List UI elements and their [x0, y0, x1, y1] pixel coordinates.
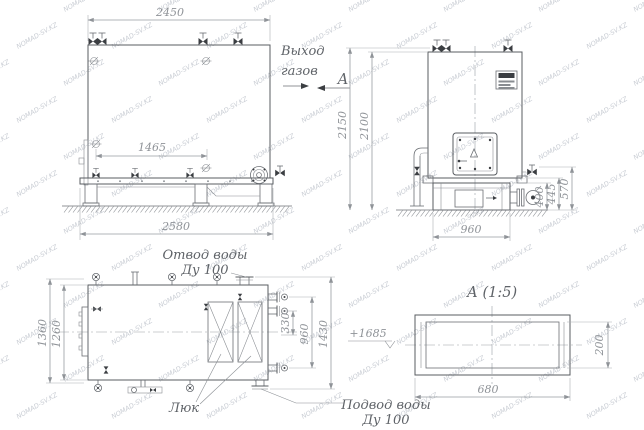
watermark-text: NOMAD-SV.KZ — [632, 354, 644, 384]
nameplate — [496, 71, 517, 89]
ground-hatch-line — [69, 207, 74, 213]
dim-text: 680 — [478, 383, 499, 396]
elevation-mark: +1685 — [348, 327, 395, 348]
dim-text: 1260 — [50, 320, 63, 348]
dim-text: 200 — [593, 335, 606, 357]
watermark-text: NOMAD-SV.KZ — [347, 354, 391, 384]
ground-hatch-line — [434, 211, 439, 217]
watermark-text: NOMAD-SV.KZ — [632, 132, 644, 162]
technical-drawing-page: NOMAD-SV.KZNOMAD-SV.KZNOMAD-SV.KZNOMAD-S… — [0, 0, 644, 430]
watermark-text: NOMAD-SV.KZ — [15, 243, 59, 273]
ground-hatch-line — [177, 207, 182, 213]
ground-hatch-line — [443, 211, 448, 217]
dim-text: 960 — [298, 324, 311, 345]
watermark-text: NOMAD-SV.KZ — [347, 206, 391, 236]
ground-hatch-line — [150, 207, 155, 213]
watermark-text: NOMAD-SV.KZ — [585, 391, 629, 421]
ground-hatch-line — [73, 207, 78, 213]
watermark-text: NOMAD-SV.KZ — [585, 95, 629, 125]
plan-hinge-strip — [79, 307, 88, 356]
pipe-manifold — [128, 380, 162, 393]
valve-icon — [104, 366, 109, 373]
section-arrowhead-icon — [317, 85, 325, 91]
ledge-rivet-dot — [141, 180, 143, 182]
ground-hatch-line — [172, 207, 177, 213]
watermark-text: NOMAD-SV.KZ — [110, 391, 154, 421]
dim-330: 330 — [279, 311, 297, 335]
dim-text: 400 — [533, 187, 546, 209]
watermark-text: NOMAD-SV.KZ — [632, 206, 644, 236]
ground-hatch-line — [204, 207, 209, 213]
dim-text: 2100 — [358, 112, 371, 141]
valve-icon — [238, 294, 242, 301]
dim-text: 1430 — [317, 320, 330, 348]
watermark-text: NOMAD-SV.KZ — [205, 21, 249, 51]
ground-hatch-line — [118, 207, 123, 213]
gas-flow-arrowhead-icon — [301, 83, 309, 89]
valve-icon — [186, 168, 193, 178]
ledge-rivet-dot — [229, 180, 231, 182]
watermark-text: NOMAD-SV.KZ — [110, 21, 154, 51]
ground-hatch-line — [163, 207, 168, 213]
watermark-text: NOMAD-SV.KZ — [0, 280, 11, 310]
ground-hatch-line — [448, 211, 453, 217]
ground-hatch-line — [430, 211, 435, 217]
watermark-text: NOMAD-SV.KZ — [205, 317, 249, 347]
watermark-text: NOMAD-SV.KZ — [632, 0, 644, 14]
watermark-text: NOMAD-SV.KZ — [0, 132, 11, 162]
watermark-text: NOMAD-SV.KZ — [490, 243, 534, 273]
ledge-rivet-dot — [97, 180, 99, 182]
ground-hatch-line — [226, 207, 231, 213]
dim-text: 1360 — [36, 319, 49, 347]
elevation-mark-icon — [385, 341, 395, 348]
ground-hatch-line — [168, 207, 173, 213]
gas-outlet-line2: газов — [281, 64, 318, 79]
valve-icon — [442, 40, 451, 52]
watermark-text: NOMAD-SV.KZ — [347, 58, 391, 88]
detail-title: А (1:5) — [466, 285, 517, 301]
watermark-text: NOMAD-SV.KZ — [252, 0, 296, 14]
ground-hatch-line — [520, 211, 525, 217]
valve-icon — [186, 384, 193, 391]
watermark-text: NOMAD-SV.KZ — [0, 58, 11, 88]
ground-hatch-line — [497, 211, 502, 217]
ground-hatch-line — [231, 207, 236, 213]
watermark-text: NOMAD-SV.KZ — [537, 0, 581, 14]
burner-flange-icon — [251, 167, 268, 184]
watermark-text: NOMAD-SV.KZ — [0, 0, 11, 14]
watermark-text: NOMAD-SV.KZ — [442, 58, 486, 88]
watermark-text: NOMAD-SV.KZ — [537, 58, 581, 88]
watermark-text: NOMAD-SV.KZ — [395, 317, 439, 347]
watermark-text: NOMAD-SV.KZ — [205, 95, 249, 125]
watermark-text: NOMAD-SV.KZ — [347, 280, 391, 310]
ground-hatch-line — [542, 211, 547, 217]
watermark-text: NOMAD-SV.KZ — [252, 132, 296, 162]
ledge-rivet-dot — [119, 180, 121, 182]
side-stub — [79, 158, 84, 164]
ground-hatch-line — [425, 211, 430, 217]
dim-text: 2450 — [155, 6, 184, 19]
water-outlet-nozzle — [236, 277, 253, 285]
bottom-fittings — [94, 380, 268, 393]
ground-hatch-line — [64, 207, 69, 213]
ground-hatch-line — [199, 207, 204, 213]
ground-hatch-line — [253, 207, 258, 213]
watermark-text: NOMAD-SV.KZ — [252, 280, 296, 310]
dim-text: 1465 — [138, 141, 166, 154]
water-outlet-line2: Ду 100 — [180, 263, 228, 278]
ground-hatch-line — [105, 207, 110, 213]
watermark-text: NOMAD-SV.KZ — [252, 206, 296, 236]
watermark-text: NOMAD-SV.KZ — [110, 317, 154, 347]
ledge-rivet-dot — [163, 180, 165, 182]
ground-hatch-line — [154, 207, 159, 213]
valve-icon — [168, 273, 175, 280]
watermark-text: NOMAD-SV.KZ — [15, 95, 59, 125]
ground-hatch-line — [533, 211, 538, 217]
ground-hatch-line — [398, 211, 403, 217]
ground-hatch-line — [114, 207, 119, 213]
watermark-text: NOMAD-SV.KZ — [585, 243, 629, 273]
watermark-text: NOMAD-SV.KZ — [205, 391, 249, 421]
ground-hatch-line — [240, 207, 245, 213]
watermark-text: NOMAD-SV.KZ — [632, 280, 644, 310]
watermark-text: NOMAD-SV.KZ — [300, 243, 344, 273]
ground-hatch-line — [267, 207, 272, 213]
boiler-body-side — [88, 45, 270, 178]
ground-hatch-line — [524, 211, 529, 217]
ground-hatch-line — [109, 207, 114, 213]
ground-hatch-line — [439, 211, 444, 217]
ground-hatch-line — [452, 211, 457, 217]
ground-hatch-line — [403, 211, 408, 217]
dim-text: 570 — [558, 179, 571, 200]
ground-hatch-line — [244, 207, 249, 213]
watermark-text: NOMAD-SV.KZ — [0, 354, 11, 384]
gas-outlet-label: Выход газов — [280, 44, 325, 89]
valve-icon — [275, 166, 285, 176]
ground-hatch-line — [235, 207, 240, 213]
water-outlet-line1: Отвод воды — [163, 248, 248, 263]
ground-hatch-line — [141, 207, 146, 213]
valve-icon — [199, 33, 208, 45]
watermark-text: NOMAD-SV.KZ — [15, 391, 59, 421]
watermark-text: NOMAD-SV.KZ — [15, 21, 59, 51]
detail-a-view: А (1:5) 680 200 — [405, 285, 612, 401]
watermark-text: NOMAD-SV.KZ — [490, 317, 534, 347]
water-inlet-label: Подвод воды Ду 100 — [261, 389, 431, 428]
ground-hatch-line — [217, 207, 222, 213]
front-view: 2150 2100 570 445 400 960 — [336, 40, 576, 241]
valve-icon — [92, 273, 99, 280]
boiler-technical-drawing: NOMAD-SV.KZNOMAD-SV.KZNOMAD-SV.KZNOMAD-S… — [0, 0, 644, 430]
watermark-text: NOMAD-SV.KZ — [62, 280, 106, 310]
water-outlet-label: Отвод воды Ду 100 — [163, 248, 248, 278]
ground-hatch-line — [249, 207, 254, 213]
watermark-text: NOMAD-SV.KZ — [110, 95, 154, 125]
watermark-text: NOMAD-SV.KZ — [395, 243, 439, 273]
ground-hatch-line — [488, 211, 493, 217]
water-inlet-line2: Ду 100 — [361, 413, 409, 428]
sight-glass-icon — [471, 149, 478, 157]
watermark-text: NOMAD-SV.KZ — [0, 206, 11, 236]
watermark-text: NOMAD-SV.KZ — [585, 317, 629, 347]
ground-hatch-line — [181, 207, 186, 213]
section-arrow-a: А — [317, 72, 350, 91]
ground-hatch-line — [529, 211, 534, 217]
ground-hatch-line — [159, 207, 164, 213]
watermark-text: NOMAD-SV.KZ — [585, 21, 629, 51]
valve-icon — [89, 33, 98, 45]
watermark-text: NOMAD-SV.KZ — [157, 280, 201, 310]
dim-text: 2150 — [336, 111, 349, 140]
ground-hatch-line — [262, 207, 267, 213]
ground-hatch-line — [421, 211, 426, 217]
watermark-text: NOMAD-SV.KZ — [537, 132, 581, 162]
watermark-text: NOMAD-SV.KZ — [62, 58, 106, 88]
watermark-text: NOMAD-SV.KZ — [442, 0, 486, 14]
watermark-text: NOMAD-SV.KZ — [585, 169, 629, 199]
ground-hatch-line — [136, 207, 141, 213]
ground-hatch-line — [82, 207, 87, 213]
ground-hatch-line — [276, 207, 281, 213]
ground-hatch-line — [416, 211, 421, 217]
ledge-rivet-dot — [207, 180, 209, 182]
ground-hatch-line — [538, 211, 543, 217]
watermark-text: NOMAD-SV.KZ — [442, 354, 486, 384]
ground-hatch-line — [127, 207, 132, 213]
ground-hatch-line — [123, 207, 128, 213]
ground-hatch-line — [208, 207, 213, 213]
datum-icon — [201, 164, 212, 172]
ground-hatch-line — [213, 207, 218, 213]
valve-icon — [204, 304, 208, 311]
hatch-text: Люк — [168, 401, 199, 416]
leader-line — [231, 273, 246, 277]
watermark-text: NOMAD-SV.KZ — [110, 243, 154, 273]
dim-text: 2580 — [161, 220, 190, 233]
watermark-text: NOMAD-SV.KZ — [15, 169, 59, 199]
ground-hatch-line — [132, 207, 137, 213]
watermark-text: NOMAD-SV.KZ — [62, 354, 106, 384]
watermark-text: NOMAD-SV.KZ — [490, 95, 534, 125]
ground-hatch-line — [515, 211, 520, 217]
valve-icon — [414, 167, 420, 175]
watermark-text: NOMAD-SV.KZ — [347, 0, 391, 14]
ground-hatch-line — [145, 207, 150, 213]
ground-hatch-line — [412, 211, 417, 217]
inspection-door — [453, 133, 497, 175]
watermark-text: NOMAD-SV.KZ — [252, 354, 296, 384]
valve-icon — [94, 384, 101, 391]
ground-hatch-line — [511, 211, 516, 217]
ground-hatch-line — [457, 211, 462, 217]
ground-hatch-line — [407, 211, 412, 217]
water-inlet-line1: Подвод воды — [340, 398, 430, 413]
ground-hatch-line — [493, 211, 498, 217]
elevation-text: +1685 — [349, 327, 386, 340]
top-fittings — [92, 272, 253, 285]
ground-hatch-line — [502, 211, 507, 217]
watermark-text: NOMAD-SV.KZ — [300, 169, 344, 199]
ground-hatch-line — [258, 207, 263, 213]
watermark-text: NOMAD-SV.KZ — [157, 354, 201, 384]
ledge-rivet-dot — [185, 180, 187, 182]
watermark-text: NOMAD-SV.KZ — [632, 58, 644, 88]
watermark-text: NOMAD-SV.KZ — [300, 391, 344, 421]
valve-icon — [92, 168, 99, 178]
dim-text: 960 — [461, 223, 482, 236]
valve-icon — [433, 40, 442, 52]
watermark-text: NOMAD-SV.KZ — [442, 132, 486, 162]
valve-icon — [98, 33, 107, 45]
watermark-text: NOMAD-SV.KZ — [62, 0, 106, 14]
ash-door — [455, 190, 483, 207]
section-letter: А — [337, 72, 349, 88]
datum-icon — [201, 57, 212, 65]
watermark-text: NOMAD-SV.KZ — [395, 95, 439, 125]
ground-hatch-line — [222, 207, 227, 213]
dim-text: 330 — [279, 313, 292, 334]
watermark-text: NOMAD-SV.KZ — [537, 280, 581, 310]
gas-outlet-line1: Выход — [280, 44, 325, 59]
watermark-text: NOMAD-SV.KZ — [157, 58, 201, 88]
